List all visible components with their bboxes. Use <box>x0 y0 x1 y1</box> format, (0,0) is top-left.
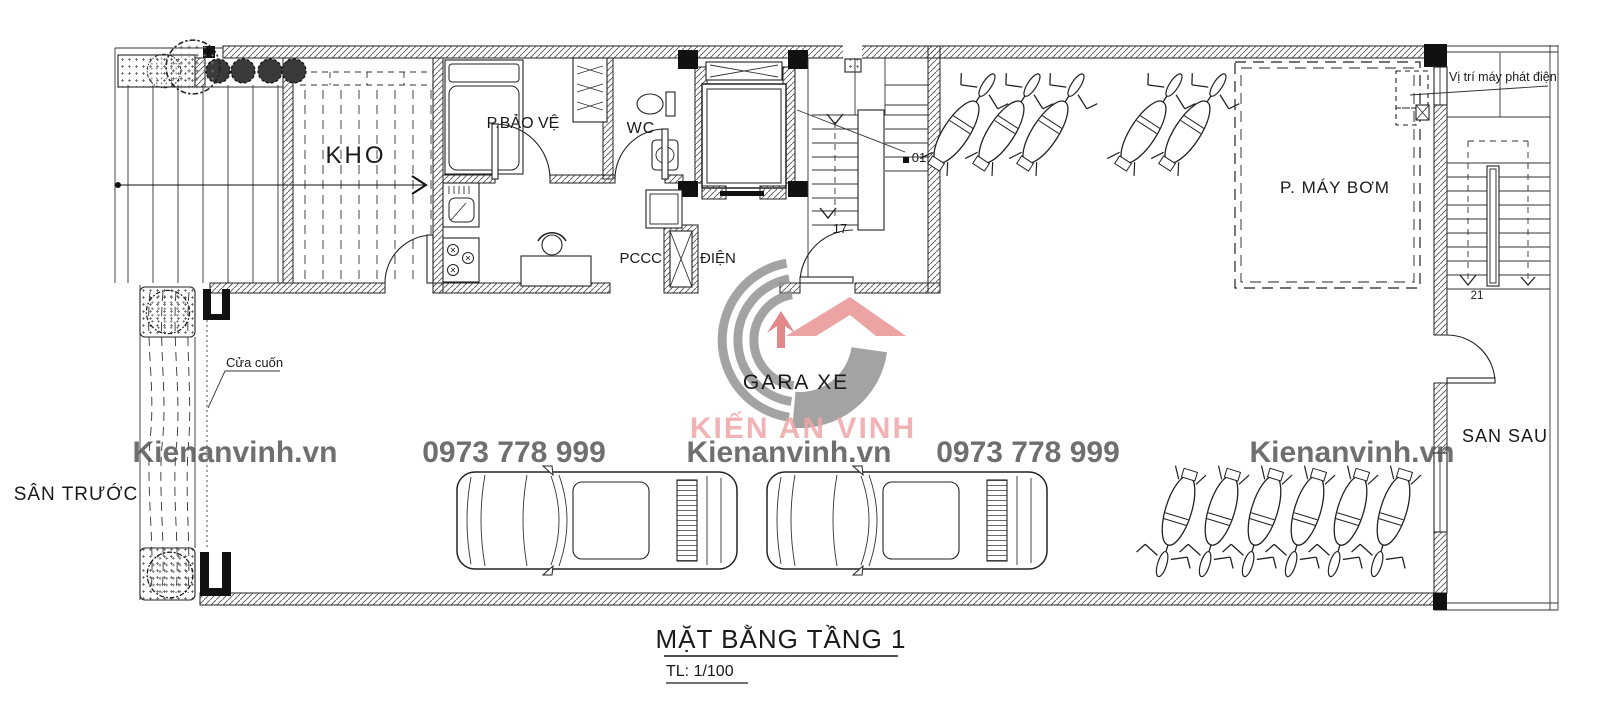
label-storage: KHO <box>325 142 386 169</box>
logo-arrow-icon <box>767 311 795 348</box>
label-generator-location: Vị trí máy phát điện <box>1449 70 1557 84</box>
centerline-arrow <box>115 176 426 194</box>
pump-room <box>1235 62 1420 288</box>
wardrobe <box>573 58 607 122</box>
electrical-cabinet <box>646 190 682 228</box>
label-dien: ĐIỆN <box>700 250 736 267</box>
leader-line <box>1410 86 1548 95</box>
label-pccc: PCCC <box>619 250 662 267</box>
stair-marker-01: 01 <box>912 150 926 165</box>
label-garage: GARA XE <box>743 371 849 394</box>
tree <box>146 290 189 333</box>
drawing-scale: TL: 1/100 <box>666 663 734 680</box>
car <box>457 466 737 575</box>
watermark-phone: 0973 778 999 <box>422 436 606 469</box>
bush <box>282 59 306 83</box>
watermark-phone: 0973 778 999 <box>936 436 1120 469</box>
watermark-website: Kienanvinh.vn <box>132 436 337 469</box>
toilet <box>637 94 663 114</box>
watermarks: KIẾN AN VINH Kienanvinh.vn 0973 778 999 … <box>132 411 1454 469</box>
stair-marker-21: 21 <box>1471 290 1484 302</box>
label-back-yard: SAN SAU <box>1462 426 1548 446</box>
label-rolling-door: Cửa cuốn <box>226 355 283 370</box>
label-wc: WC <box>627 120 656 137</box>
bush <box>258 59 282 83</box>
main-staircase <box>797 58 928 283</box>
logo-roof <box>786 297 906 336</box>
bush <box>231 59 255 83</box>
car <box>767 466 1047 575</box>
floor-plan-sheet: KHO P.BẢO VỆ WC PCCC ĐIỆN GARA XE P. MÁY… <box>0 0 1600 728</box>
floor-plan-drawing: KHO P.BẢO VỆ WC PCCC ĐIỆN GARA XE P. MÁY… <box>0 0 1600 728</box>
stair-marker-17: 17 <box>833 221 847 236</box>
leader-line <box>208 371 280 408</box>
right-staircase <box>1447 53 1550 289</box>
elevator <box>702 62 786 199</box>
watermark-website: Kienanvinh.vn <box>1249 436 1454 469</box>
pccc-shaft <box>646 190 698 293</box>
title-block: MẶT BẰNG TẦNG 1 TL: 1/100 <box>656 624 907 683</box>
tree <box>166 40 220 94</box>
desk <box>521 256 591 286</box>
security-room-furniture <box>443 58 607 286</box>
watermark-website: Kienanvinh.vn <box>686 436 891 469</box>
label-security-room: P.BẢO VỆ <box>487 113 560 132</box>
label-pump-room: P. MÁY BƠM <box>1280 178 1390 197</box>
tree <box>147 552 193 598</box>
ramp-lines <box>128 85 278 283</box>
chair <box>542 235 562 255</box>
drawing-title: MẶT BẰNG TẦNG 1 <box>656 624 907 654</box>
label-front-yard: SÂN TRƯỚC <box>14 483 139 505</box>
